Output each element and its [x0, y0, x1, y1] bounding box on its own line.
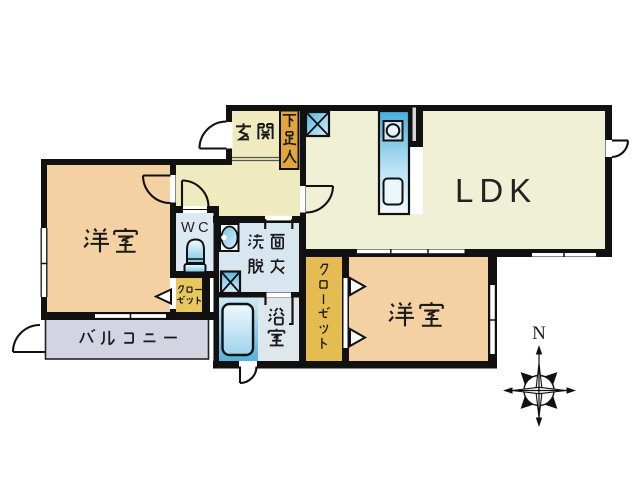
svg-text:LDK: LDK [455, 172, 537, 209]
svg-text:N: N [532, 323, 546, 344]
svg-text:WC: WC [181, 220, 212, 236]
